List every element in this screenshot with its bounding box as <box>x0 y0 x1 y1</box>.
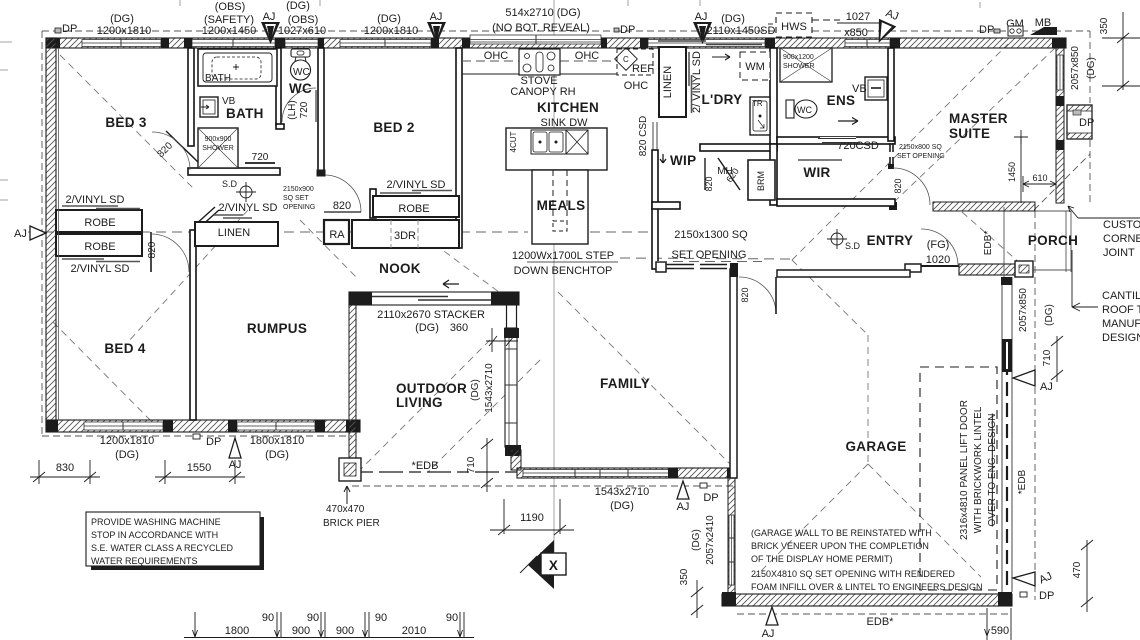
svg-text:C: C <box>623 55 629 64</box>
svg-text:1543x2710: 1543x2710 <box>484 363 495 413</box>
svg-text:DP: DP <box>620 24 635 36</box>
svg-text:(DG): (DG) <box>1044 304 1055 326</box>
svg-text:2/VINYL SD: 2/VINYL SD <box>66 194 125 206</box>
svg-text:MEALS: MEALS <box>537 198 586 213</box>
svg-text:2/VINYL SD: 2/VINYL SD <box>387 179 446 191</box>
svg-text:4CUT: 4CUT <box>509 131 518 152</box>
svg-text:GARAGE: GARAGE <box>845 439 906 454</box>
svg-text:BRICK VENEER UPON THE COMPLETI: BRICK VENEER UPON THE COMPLETION <box>751 541 929 551</box>
svg-text:AJ: AJ <box>1040 381 1053 393</box>
svg-text:MASTER: MASTER <box>949 111 1008 126</box>
svg-text:DP: DP <box>62 23 77 35</box>
svg-text:3DR: 3DR <box>394 230 416 242</box>
svg-text:1200x1450: 1200x1450 <box>202 25 256 37</box>
svg-text:*EDB: *EDB <box>1017 469 1028 494</box>
svg-text:BED 3: BED 3 <box>105 115 146 130</box>
svg-text:LIVING: LIVING <box>396 395 443 410</box>
svg-text:2057x850: 2057x850 <box>1018 288 1029 332</box>
svg-text:DP: DP <box>1079 117 1094 129</box>
svg-text:2/VINYL SD: 2/VINYL SD <box>219 202 278 214</box>
svg-text:2110x2670 STACKER: 2110x2670 STACKER <box>377 309 485 321</box>
svg-text:NOOK: NOOK <box>379 261 421 276</box>
svg-text:AJ: AJ <box>677 501 690 513</box>
svg-text:x850: x850 <box>844 27 868 39</box>
svg-text:CUSTOM: CUSTOM <box>1103 219 1140 231</box>
svg-text:STOP IN ACCORDANCE WITH: STOP IN ACCORDANCE WITH <box>91 530 218 540</box>
svg-text:FOAM INFILL OVER & LINTEL TO E: FOAM INFILL OVER & LINTEL TO ENGINEERS D… <box>751 582 983 592</box>
svg-text:2150x800 SQ: 2150x800 SQ <box>899 144 942 151</box>
svg-text:DP: DP <box>206 436 221 448</box>
svg-text:AJ: AJ <box>695 11 708 23</box>
svg-text:820 CSD: 820 CSD <box>638 116 649 157</box>
svg-text:90: 90 <box>446 612 458 624</box>
svg-text:OHC: OHC <box>484 50 509 62</box>
svg-text:X: X <box>549 558 558 573</box>
svg-text:590: 590 <box>991 625 1009 637</box>
svg-text:AJ: AJ <box>263 11 276 23</box>
svg-text:610: 610 <box>1032 173 1047 183</box>
svg-text:820: 820 <box>333 200 351 212</box>
svg-text:900x900: 900x900 <box>205 136 232 143</box>
svg-text:1190: 1190 <box>520 512 544 524</box>
svg-text:820: 820 <box>147 241 158 258</box>
svg-text:CANOPY RH: CANOPY RH <box>510 86 575 98</box>
svg-text:1200x1810: 1200x1810 <box>100 435 154 447</box>
svg-text:WC: WC <box>289 81 312 96</box>
svg-text:(NO BOT. REVEAL): (NO BOT. REVEAL) <box>492 22 590 34</box>
svg-text:WC: WC <box>293 67 310 78</box>
svg-text:OUTDOOR: OUTDOOR <box>396 381 467 396</box>
svg-text:(DG): (DG) <box>115 449 139 461</box>
svg-text:BRICK PIER: BRICK PIER <box>323 518 380 529</box>
svg-text:350: 350 <box>1099 17 1110 34</box>
svg-text:WIR: WIR <box>803 165 830 180</box>
svg-text:90: 90 <box>375 612 387 624</box>
svg-text:(GARAGE WALL TO BE REINSTATED: (GARAGE WALL TO BE REINSTATED WITH <box>751 528 932 538</box>
svg-text:2010: 2010 <box>402 625 426 637</box>
svg-text:(LH): (LH) <box>287 100 298 119</box>
svg-text:(DG): (DG) <box>415 322 439 334</box>
svg-text:1450: 1450 <box>1007 162 1017 182</box>
svg-text:OF THE DISPLAY HOME PERMIT): OF THE DISPLAY HOME PERMIT) <box>751 554 893 564</box>
svg-text:AJ: AJ <box>762 628 775 640</box>
svg-text:CORNER: CORNER <box>1103 233 1140 245</box>
svg-text:RUMPUS: RUMPUS <box>247 321 307 336</box>
svg-text:OHC: OHC <box>575 50 600 62</box>
svg-text:SHOWER: SHOWER <box>783 63 815 70</box>
svg-text:SET OPENING: SET OPENING <box>672 249 747 261</box>
svg-text:WITH BRICKWORK LINTEL: WITH BRICKWORK LINTEL <box>973 406 984 533</box>
svg-text:KITCHEN: KITCHEN <box>537 100 599 115</box>
svg-text:1027: 1027 <box>846 11 870 23</box>
svg-text:(FG): (FG) <box>927 239 950 251</box>
svg-text:2/VINYL SD: 2/VINYL SD <box>71 263 130 275</box>
svg-text:(DG): (DG) <box>110 13 134 25</box>
svg-text:(DG): (DG) <box>721 13 745 25</box>
svg-text:S.D: S.D <box>845 241 861 251</box>
svg-text:820: 820 <box>704 176 714 191</box>
svg-text:BED 2: BED 2 <box>373 120 414 135</box>
svg-text:SUITE: SUITE <box>949 126 990 141</box>
svg-text:(DG): (DG) <box>1086 57 1097 79</box>
svg-text:ROBE: ROBE <box>398 203 429 215</box>
svg-text:S.E. WATER CLASS A RECYCLED: S.E. WATER CLASS A RECYCLED <box>91 543 234 553</box>
svg-text:DP: DP <box>979 24 994 36</box>
svg-text:(DG): (DG) <box>610 500 634 512</box>
svg-text:SET OPENING: SET OPENING <box>897 153 945 160</box>
svg-text:ENTRY: ENTRY <box>867 233 914 248</box>
svg-text:FAMILY: FAMILY <box>600 376 650 391</box>
svg-text:L'DRY: L'DRY <box>702 92 743 107</box>
svg-text:(DG): (DG) <box>286 0 310 12</box>
svg-text:OPENING: OPENING <box>283 204 315 211</box>
svg-text:900x1200: 900x1200 <box>783 54 814 61</box>
svg-text:DOWN BENCHTOP: DOWN BENCHTOP <box>514 265 613 277</box>
svg-text:710: 710 <box>1042 349 1053 366</box>
svg-text:VB: VB <box>852 83 867 95</box>
svg-text:900: 900 <box>292 625 310 637</box>
svg-text:(DG): (DG) <box>265 449 289 461</box>
svg-text:WIP: WIP <box>670 153 696 168</box>
svg-text:2150X4810 SQ SET OPENING WITH: 2150X4810 SQ SET OPENING WITH RENDERED <box>751 569 955 579</box>
svg-text:720: 720 <box>252 152 269 163</box>
svg-text:EDB*: EDB* <box>867 616 895 628</box>
svg-text:(DG): (DG) <box>691 529 702 551</box>
svg-text:710: 710 <box>466 456 477 473</box>
svg-text:2150x900: 2150x900 <box>283 186 314 193</box>
svg-text:WC: WC <box>797 105 812 115</box>
svg-text:CANTILEV: CANTILEV <box>1102 290 1140 302</box>
svg-text:PROVIDE WASHING MACHINE: PROVIDE WASHING MACHINE <box>91 517 221 527</box>
svg-text:720: 720 <box>299 101 310 118</box>
svg-text:2110x1450SD: 2110x1450SD <box>707 25 776 37</box>
svg-text:360: 360 <box>450 322 468 334</box>
svg-text:2057x850: 2057x850 <box>1070 46 1081 90</box>
svg-text:ROBE: ROBE <box>84 241 115 253</box>
svg-text:2057x2410: 2057x2410 <box>705 515 716 565</box>
svg-text:1027x610: 1027x610 <box>278 25 326 37</box>
svg-text:BATH: BATH <box>226 106 264 121</box>
svg-text:1020: 1020 <box>926 254 950 266</box>
svg-text:900: 900 <box>336 625 354 637</box>
svg-text:REF: REF <box>632 63 654 75</box>
svg-text:AJ: AJ <box>14 228 27 240</box>
svg-text:2316x4810 PANEL LIFT DOOR: 2316x4810 PANEL LIFT DOOR <box>959 400 970 540</box>
svg-text:BED 4: BED 4 <box>104 341 145 356</box>
svg-text:ENS: ENS <box>827 93 856 108</box>
svg-text:ROOF TRU: ROOF TRU <box>1102 304 1140 316</box>
svg-text:RA: RA <box>329 229 345 241</box>
svg-text:1200x1810: 1200x1810 <box>97 25 151 37</box>
svg-text:90: 90 <box>307 612 319 624</box>
svg-text:DP: DP <box>1039 590 1054 602</box>
svg-text:1800x1810: 1800x1810 <box>250 435 304 447</box>
svg-text:PORCH: PORCH <box>1028 233 1078 248</box>
svg-text:LINEN: LINEN <box>662 66 674 98</box>
svg-text:DESIGN: DESIGN <box>1102 332 1140 344</box>
svg-text:350: 350 <box>679 568 690 585</box>
svg-text:OHC: OHC <box>624 80 649 92</box>
svg-text:EDB*: EDB* <box>983 231 994 256</box>
svg-text:470x470: 470x470 <box>326 504 365 515</box>
svg-text:SQ SET: SQ SET <box>283 195 309 202</box>
svg-text:470: 470 <box>1072 561 1083 578</box>
svg-text:LINEN: LINEN <box>218 227 250 239</box>
svg-text:1800: 1800 <box>225 625 249 637</box>
svg-text:HWS: HWS <box>781 21 807 33</box>
svg-text:*EDB: *EDB <box>412 460 439 472</box>
svg-text:MANUFAC: MANUFAC <box>1102 318 1140 330</box>
svg-text:BATH: BATH <box>205 73 231 84</box>
svg-text:SHOWER: SHOWER <box>202 145 234 152</box>
svg-text:(OBS): (OBS) <box>215 1 246 13</box>
svg-text:JOINT: JOINT <box>1103 247 1135 259</box>
svg-text:(DG): (DG) <box>470 379 481 401</box>
svg-text:90: 90 <box>262 612 274 624</box>
svg-text:WM: WM <box>745 61 765 73</box>
svg-text:AJ: AJ <box>430 11 443 23</box>
svg-text:BRM: BRM <box>756 171 766 191</box>
svg-text:OVER TO ENG. DESIGN: OVER TO ENG. DESIGN <box>987 414 998 527</box>
svg-text:S.D: S.D <box>222 179 238 189</box>
svg-text:2150x1300 SQ: 2150x1300 SQ <box>674 229 748 241</box>
svg-text:TR: TR <box>752 99 763 108</box>
svg-text:1200x1810: 1200x1810 <box>364 25 418 37</box>
svg-text:1543x2710: 1543x2710 <box>595 486 649 498</box>
svg-text:830: 830 <box>56 462 74 474</box>
svg-text:DP: DP <box>703 492 718 504</box>
svg-text:1200Wx1700L STEP: 1200Wx1700L STEP <box>512 250 614 262</box>
svg-text:SINK DW: SINK DW <box>540 117 588 129</box>
svg-text:1550: 1550 <box>187 462 211 474</box>
svg-text:514x2710 (DG): 514x2710 (DG) <box>505 7 580 19</box>
svg-text:ROBE: ROBE <box>84 217 115 229</box>
svg-text:(DG): (DG) <box>377 13 401 25</box>
svg-text:WATER REQUIREMENTS: WATER REQUIREMENTS <box>91 556 198 566</box>
svg-text:820: 820 <box>893 178 903 193</box>
svg-text:820: 820 <box>740 287 750 302</box>
